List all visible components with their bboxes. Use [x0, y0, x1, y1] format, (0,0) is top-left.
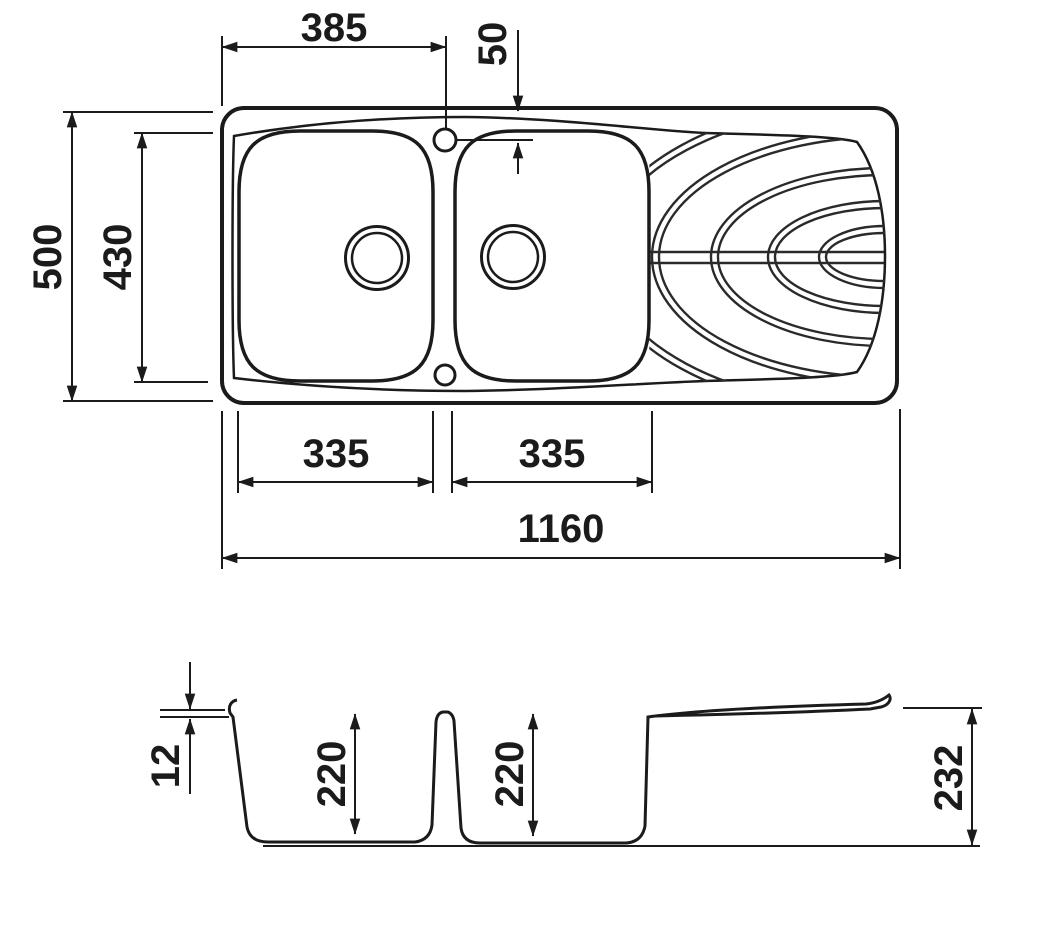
dim-385-label: 385	[301, 6, 368, 50]
dim-220-left-label: 220	[310, 741, 354, 808]
technical-drawing-page: 385 50 500 430 335	[0, 0, 1055, 937]
bowl-left	[239, 131, 433, 381]
tap-hole-bottom	[435, 365, 455, 385]
rib-arc	[711, 168, 885, 346]
dim-500-label: 500	[26, 224, 70, 291]
sink-deck-outline	[233, 117, 886, 391]
top-view: 385 50 500 430 335	[26, 6, 900, 569]
drain-left-inner	[352, 233, 402, 283]
dim-385: 385	[222, 6, 446, 129]
dim-12-label: 12	[144, 744, 188, 789]
dim-220-right-label: 220	[488, 741, 532, 808]
section-view: 12 220 220 232	[144, 662, 982, 846]
rib-arc	[597, 99, 885, 415]
dim-50: 50	[456, 22, 533, 174]
rib-arc	[718, 175, 885, 339]
drain-right-outer	[482, 226, 545, 289]
bowl-right	[455, 131, 649, 381]
dim-232: 232	[903, 708, 982, 845]
sink-outer-rim	[222, 108, 897, 403]
dim-50-label: 50	[471, 22, 515, 67]
drain-right-inner	[488, 232, 538, 282]
tap-hole-top	[434, 129, 456, 151]
rib-arc	[819, 226, 885, 288]
dim-430: 430	[96, 133, 213, 382]
dim-12: 12	[144, 662, 229, 794]
dim-335-left: 335	[238, 411, 433, 493]
sink-technical-drawing: 385 50 500 430 335	[0, 0, 1055, 937]
dim-1160-label: 1160	[518, 507, 605, 551]
dim-220-left: 220	[310, 714, 355, 834]
rib-arc	[604, 106, 885, 408]
dim-232-label: 232	[927, 745, 971, 812]
drain-left-outer	[346, 227, 409, 290]
dim-430-label: 430	[96, 224, 140, 291]
rib-arc	[826, 233, 885, 281]
dim-220-right: 220	[488, 714, 533, 836]
dim-335-right: 335	[452, 411, 652, 493]
dim-335-left-label: 335	[303, 432, 370, 476]
rib-arc	[659, 137, 885, 377]
dim-335-right-label: 335	[519, 432, 586, 476]
